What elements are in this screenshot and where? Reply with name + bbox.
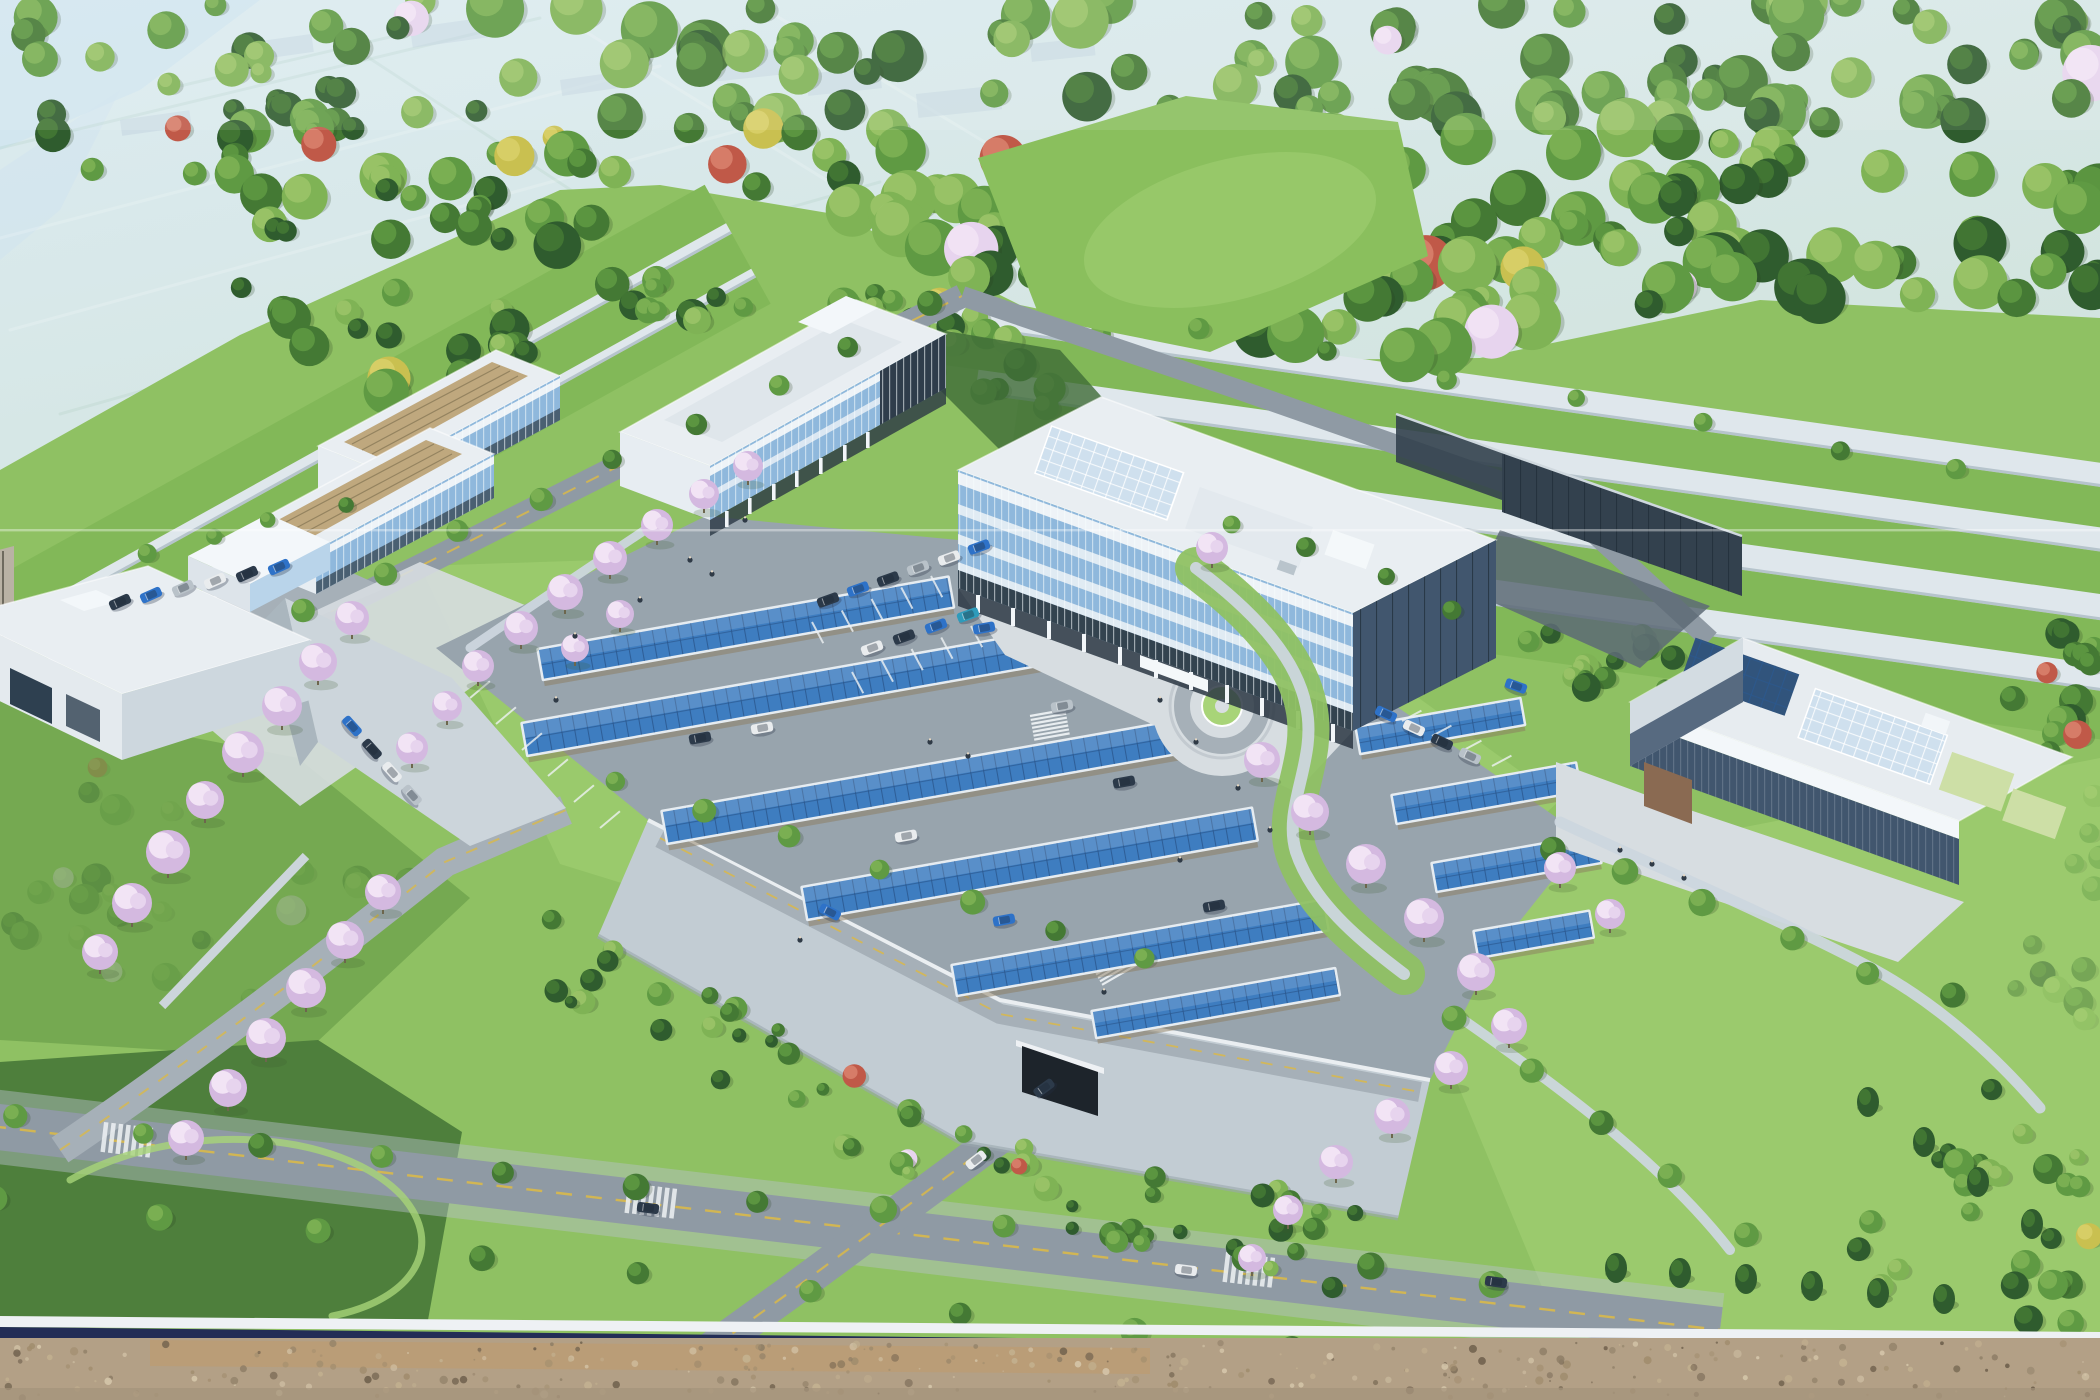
gravel-pebble <box>1622 1345 1625 1348</box>
gravel-pebble <box>878 1357 882 1361</box>
gravel-pebble <box>767 1344 771 1348</box>
gravel-pebble <box>482 1356 486 1360</box>
gravel-pebble <box>66 1364 70 1368</box>
gravel-pebble <box>191 1370 195 1374</box>
gravel-pebble <box>1779 1380 1785 1386</box>
gravel-pebble <box>753 1366 757 1370</box>
gravel-pebble <box>329 1340 336 1347</box>
gravel-pebble <box>287 1349 292 1354</box>
gravel-pebble <box>192 1376 198 1382</box>
gravel-bottom-shade <box>0 1388 2100 1400</box>
gravel-pebble <box>1525 1386 1527 1388</box>
gravel-pebble <box>312 1349 316 1353</box>
gravel-pebble <box>5 1377 9 1381</box>
gravel-pebble <box>1454 1346 1457 1349</box>
gravel-pebble <box>551 1353 555 1357</box>
gravel-pebble <box>744 1365 749 1370</box>
gravel-pebble <box>1002 1370 1004 1372</box>
gravel-pebble <box>13 1349 20 1356</box>
gravel-pebble <box>1298 1382 1303 1387</box>
gravel-pebble <box>364 1376 371 1383</box>
gravel-pebble <box>891 1354 899 1362</box>
gravel-pebble <box>1296 1367 1298 1369</box>
gravel-pebble <box>1057 1357 1062 1362</box>
gravel-pebble <box>94 1380 96 1382</box>
gravel-pebble <box>1985 1369 1988 1372</box>
gravel-pebble <box>1453 1360 1457 1364</box>
gravel-pebble <box>516 1384 520 1388</box>
gravel-pebble <box>1391 1347 1395 1351</box>
gravel-pebble <box>1908 1367 1913 1372</box>
gravel-pebble <box>864 1375 872 1383</box>
gravel-pebble <box>1171 1381 1178 1388</box>
billboard-rendering <box>0 0 2100 1400</box>
gravel-pebble <box>717 1376 725 1384</box>
gravel-pebble <box>1619 1344 1621 1346</box>
gravel-pebble <box>1965 1347 1969 1351</box>
gravel-pebble <box>1498 1349 1501 1352</box>
gravel-pebble <box>836 1375 841 1380</box>
gravel-pebble <box>1310 1374 1316 1380</box>
gravel-pebble <box>1709 1351 1714 1356</box>
gravel-pebble <box>1681 1347 1683 1349</box>
gravel-pebble <box>869 1346 873 1350</box>
gravel-pebble <box>104 1378 112 1386</box>
gravel-pebble <box>1733 1350 1741 1358</box>
gravel-pebble <box>1657 1378 1662 1383</box>
gravel-pebble <box>258 1351 261 1354</box>
gravel-pebble <box>1547 1372 1553 1378</box>
gravel-pebble <box>1690 1364 1697 1371</box>
gravel-pebble <box>1609 1347 1616 1354</box>
gravel-pebble <box>946 1359 951 1364</box>
gravel-pebble <box>1478 1357 1486 1365</box>
gravel-pebble <box>1110 1347 1112 1349</box>
gravel-pebble <box>1280 1353 1282 1355</box>
gravel-pebble <box>47 1354 53 1360</box>
gravel-pebble <box>382 1362 387 1367</box>
gravel-pebble <box>1238 1372 1244 1378</box>
gravel-pebble <box>905 1379 913 1387</box>
gravel-pebble <box>1604 1346 1608 1350</box>
gravel-pebble <box>1889 1343 1897 1351</box>
gravel-pebble <box>919 1368 921 1370</box>
gravel-pebble <box>996 1354 999 1357</box>
gravel-pebble <box>600 1358 604 1362</box>
gravel-pebble <box>1117 1379 1125 1387</box>
gravel-pebble <box>1131 1348 1137 1354</box>
gravel-pebble <box>1906 1364 1908 1366</box>
gravel-pebble <box>975 1359 978 1362</box>
gravel-pebble <box>440 1376 448 1384</box>
gravel-pebble <box>1132 1376 1139 1383</box>
gravel-pebble <box>1373 1343 1380 1350</box>
gravel-pebble <box>953 1376 955 1378</box>
gravel-pebble <box>802 1381 808 1387</box>
gravel-pebble <box>1170 1353 1175 1358</box>
gravel-pebble <box>478 1348 482 1352</box>
gravel-pebble <box>928 1385 932 1389</box>
gravel-pebble <box>1202 1345 1205 1348</box>
gravel-pebble <box>759 1353 765 1359</box>
gravel-pebble <box>460 1376 468 1384</box>
gravel-pebble <box>533 1347 536 1350</box>
gravel-pebble <box>473 1359 475 1361</box>
gravel-pebble <box>846 1370 849 1373</box>
gravel-pebble <box>416 1370 418 1372</box>
gravel-pebble <box>1673 1353 1677 1357</box>
gravel-pebble <box>2060 1340 2067 1347</box>
gravel-pebble <box>1385 1377 1391 1383</box>
gravel-pebble <box>595 1383 597 1385</box>
gravel-pebble <box>1940 1341 1944 1345</box>
gravel-pebble <box>560 1378 563 1381</box>
gravel-pebble <box>2082 1361 2084 1363</box>
gravel-pebble <box>1441 1363 1448 1370</box>
gravel-pebble <box>1975 1340 1982 1347</box>
gravel-pebble <box>1217 1340 1223 1346</box>
gravel-pebble <box>472 1373 475 1376</box>
gravel-pebble <box>222 1373 227 1378</box>
gravel-pebble <box>1813 1355 1818 1360</box>
gravel-pebble <box>1556 1355 1564 1363</box>
glare-top <box>0 0 2100 130</box>
gravel-pebble <box>1169 1364 1171 1366</box>
gravel-pebble <box>675 1368 677 1370</box>
gravel-pebble <box>1449 1364 1457 1372</box>
gravel-pebble <box>230 1377 238 1385</box>
gravel-pebble <box>1179 1367 1183 1371</box>
gravel-pebble <box>613 1381 620 1388</box>
gravel-pebble <box>1785 1375 1793 1383</box>
gravel-pebble <box>1012 1358 1018 1364</box>
gravel-pebble <box>755 1344 761 1350</box>
gravel-pebble <box>395 1382 402 1389</box>
gravel-pebble <box>1880 1351 1885 1356</box>
gravel-pebble <box>1575 1342 1577 1344</box>
gravel-pebble <box>37 1345 41 1349</box>
gravel-pebble <box>1220 1348 1225 1353</box>
gravel-pebble <box>73 1361 75 1363</box>
gravel-pebble <box>1780 1354 1783 1357</box>
gravel-pebble <box>585 1365 589 1369</box>
gravel-pebble <box>791 1367 794 1370</box>
gravel-pebble <box>791 1346 798 1353</box>
gravel-pebble <box>1725 1340 1730 1345</box>
gravel-pebble <box>1443 1373 1447 1377</box>
gravel-pebble <box>1469 1345 1477 1353</box>
gravel-pebble <box>1664 1344 1671 1351</box>
gravel-pebble <box>1539 1348 1547 1356</box>
gravel-pebble <box>1591 1381 1593 1383</box>
gravel-pebble <box>1694 1353 1699 1358</box>
gravel-pebble <box>1650 1348 1652 1350</box>
gravel-pebble <box>452 1378 459 1385</box>
gravel-pebble <box>1085 1353 1093 1361</box>
gravel-pebble <box>1167 1383 1171 1387</box>
gravel-pebble <box>631 1360 638 1367</box>
gravel-pebble <box>1422 1348 1428 1354</box>
gravel-pebble <box>1323 1361 1327 1365</box>
gravel-pebble <box>1743 1375 1748 1380</box>
gravel-pebble <box>694 1360 701 1367</box>
gravel-pebble <box>550 1342 554 1346</box>
gravel-pebble <box>270 1372 278 1380</box>
gravel-pebble <box>698 1346 703 1351</box>
gravel-pebble <box>439 1359 442 1362</box>
gravel-pebble <box>951 1355 956 1360</box>
gravel-pebble <box>1633 1376 1636 1379</box>
gravel-pebble <box>1839 1359 1847 1367</box>
gravel-pebble <box>734 1348 737 1351</box>
gravel-pebble <box>1290 1383 1295 1388</box>
gravel-pebble <box>2034 1381 2037 1384</box>
gravel-pebble <box>1716 1341 1718 1343</box>
gravel-pebble <box>1528 1358 1534 1364</box>
gravel-pebble <box>864 1348 866 1350</box>
gravel-pebble <box>1088 1362 1096 1370</box>
gravel-pebble <box>1644 1356 1652 1364</box>
gravel-pebble <box>1633 1341 1638 1346</box>
gravel-pebble <box>1047 1380 1050 1383</box>
gravel-pebble <box>390 1364 397 1371</box>
gravel-pebble <box>70 1347 78 1355</box>
gravel-pebble <box>1612 1366 1615 1369</box>
gravel-pebble <box>829 1362 836 1369</box>
gravel-pebble <box>25 1357 29 1361</box>
gravel-pebble <box>1953 1365 1960 1372</box>
gravel-pebble <box>412 1383 416 1387</box>
gravel-pebble <box>742 1355 750 1363</box>
gravel-pebble <box>2005 1364 2010 1369</box>
gravel-pebble <box>1870 1366 1876 1372</box>
gravel-pebble <box>482 1376 488 1382</box>
gravel-pebble <box>283 1362 289 1368</box>
gravel-pebble <box>1352 1375 1357 1380</box>
gravel-pebble <box>888 1369 890 1371</box>
gravel-pebble <box>1268 1378 1275 1385</box>
gravel-pebble <box>1327 1353 1334 1360</box>
gravel-pebble <box>837 1360 845 1368</box>
gravel-pebble <box>1537 1364 1544 1371</box>
gravel-pebble <box>1075 1361 1082 1368</box>
gravel-pebble <box>1923 1380 1930 1387</box>
gravel-pebble <box>1801 1356 1808 1363</box>
gravel-pebble <box>748 1369 750 1371</box>
gravel-pebble <box>318 1372 323 1377</box>
gravel-pebble <box>580 1341 583 1344</box>
gravel-pebble <box>208 1379 211 1382</box>
gravel-pebble <box>1115 1386 1117 1388</box>
gravel-pebble <box>1028 1347 1033 1352</box>
gravel-pebble <box>1714 1357 1718 1361</box>
gravel-pebble <box>1448 1377 1450 1379</box>
gravel-pebble <box>545 1360 553 1368</box>
gravel-pebble <box>1029 1362 1035 1368</box>
gravel-pebble <box>83 1350 87 1354</box>
gravel-pebble <box>1992 1354 1998 1360</box>
gravel-pebble <box>1107 1361 1109 1363</box>
photo-of-rendering-billboard <box>0 0 2100 1400</box>
gravel-pebble <box>360 1366 367 1373</box>
gravel-pebble <box>783 1357 786 1360</box>
gravel-pebble <box>568 1357 573 1362</box>
gravel-pebble <box>1102 1368 1109 1375</box>
gravel-pebble <box>88 1366 92 1370</box>
gravel-pebble <box>886 1343 891 1348</box>
gravel-pebble <box>2082 1373 2090 1381</box>
gravel-pebble <box>162 1341 169 1348</box>
gravel-pebble <box>1884 1366 1889 1371</box>
gravel-pebble <box>1802 1339 1809 1346</box>
gravel-pebble <box>1046 1353 1052 1359</box>
gravel-pebble <box>751 1374 756 1379</box>
gravel-pebble <box>376 1353 382 1359</box>
gravel-pebble <box>944 1343 948 1347</box>
gravel-pebble <box>279 1381 285 1387</box>
gravel-pebble <box>689 1347 696 1354</box>
gravel-pebble <box>848 1357 852 1361</box>
gravel-pebble <box>1812 1349 1815 1352</box>
ground-gravel <box>0 1338 2100 1400</box>
gravel-pebble <box>1169 1372 1175 1378</box>
gravel-pebble <box>1535 1376 1543 1384</box>
gravel-pebble <box>1060 1348 1068 1356</box>
gravel-pebble <box>1405 1368 1409 1372</box>
gravel-pebble <box>407 1352 409 1354</box>
gravel-pebble <box>1471 1378 1474 1381</box>
gravel-pebble <box>853 1341 861 1349</box>
gravel-pebble <box>1373 1380 1378 1385</box>
gravel-pebble <box>982 1362 984 1364</box>
gravel-pebble <box>1838 1379 1845 1386</box>
gravel-pebble <box>372 1372 380 1380</box>
gravel-pebble <box>1454 1376 1462 1384</box>
gravel-pebble <box>1560 1373 1568 1381</box>
gravel-pebble <box>1166 1355 1169 1358</box>
gravel-pebble <box>575 1347 580 1352</box>
gravel-pebble <box>1222 1368 1227 1373</box>
gravel-pebble <box>1979 1356 1982 1359</box>
gravel-pebble <box>1808 1358 1811 1361</box>
gravel-pebble <box>316 1361 323 1368</box>
gravel-pebble <box>1812 1378 1818 1384</box>
gravel-pebble <box>123 1353 127 1357</box>
gravel-pebble <box>731 1378 739 1386</box>
gravel-pebble <box>404 1373 410 1379</box>
gravel-pebble <box>330 1364 336 1370</box>
gravel-pebble <box>1180 1358 1188 1366</box>
gravel-pebble <box>320 1354 323 1357</box>
gravel-pebble <box>2077 1371 2081 1375</box>
gravel-pebble <box>1697 1373 1705 1381</box>
gravel-pebble <box>1517 1357 1521 1361</box>
gravel-pebble <box>1839 1344 1846 1351</box>
gravel-pebble <box>27 1346 32 1351</box>
gravel-pebble <box>2027 1367 2035 1375</box>
gravel-pebble <box>973 1344 978 1349</box>
gravel-pebble <box>1549 1380 1551 1382</box>
gravel-pebble <box>1141 1356 1147 1362</box>
gravel-pebble <box>1246 1368 1250 1372</box>
print-seam <box>0 529 2100 531</box>
gravel-pebble <box>688 1371 690 1373</box>
gravel-pebble <box>240 1365 247 1372</box>
gravel-pebble <box>1857 1375 1864 1382</box>
gravel-pebble <box>1009 1349 1015 1355</box>
gravel-pebble <box>18 1359 23 1364</box>
gravel-pebble <box>1522 1371 1526 1375</box>
gravel-pebble <box>1756 1356 1759 1359</box>
